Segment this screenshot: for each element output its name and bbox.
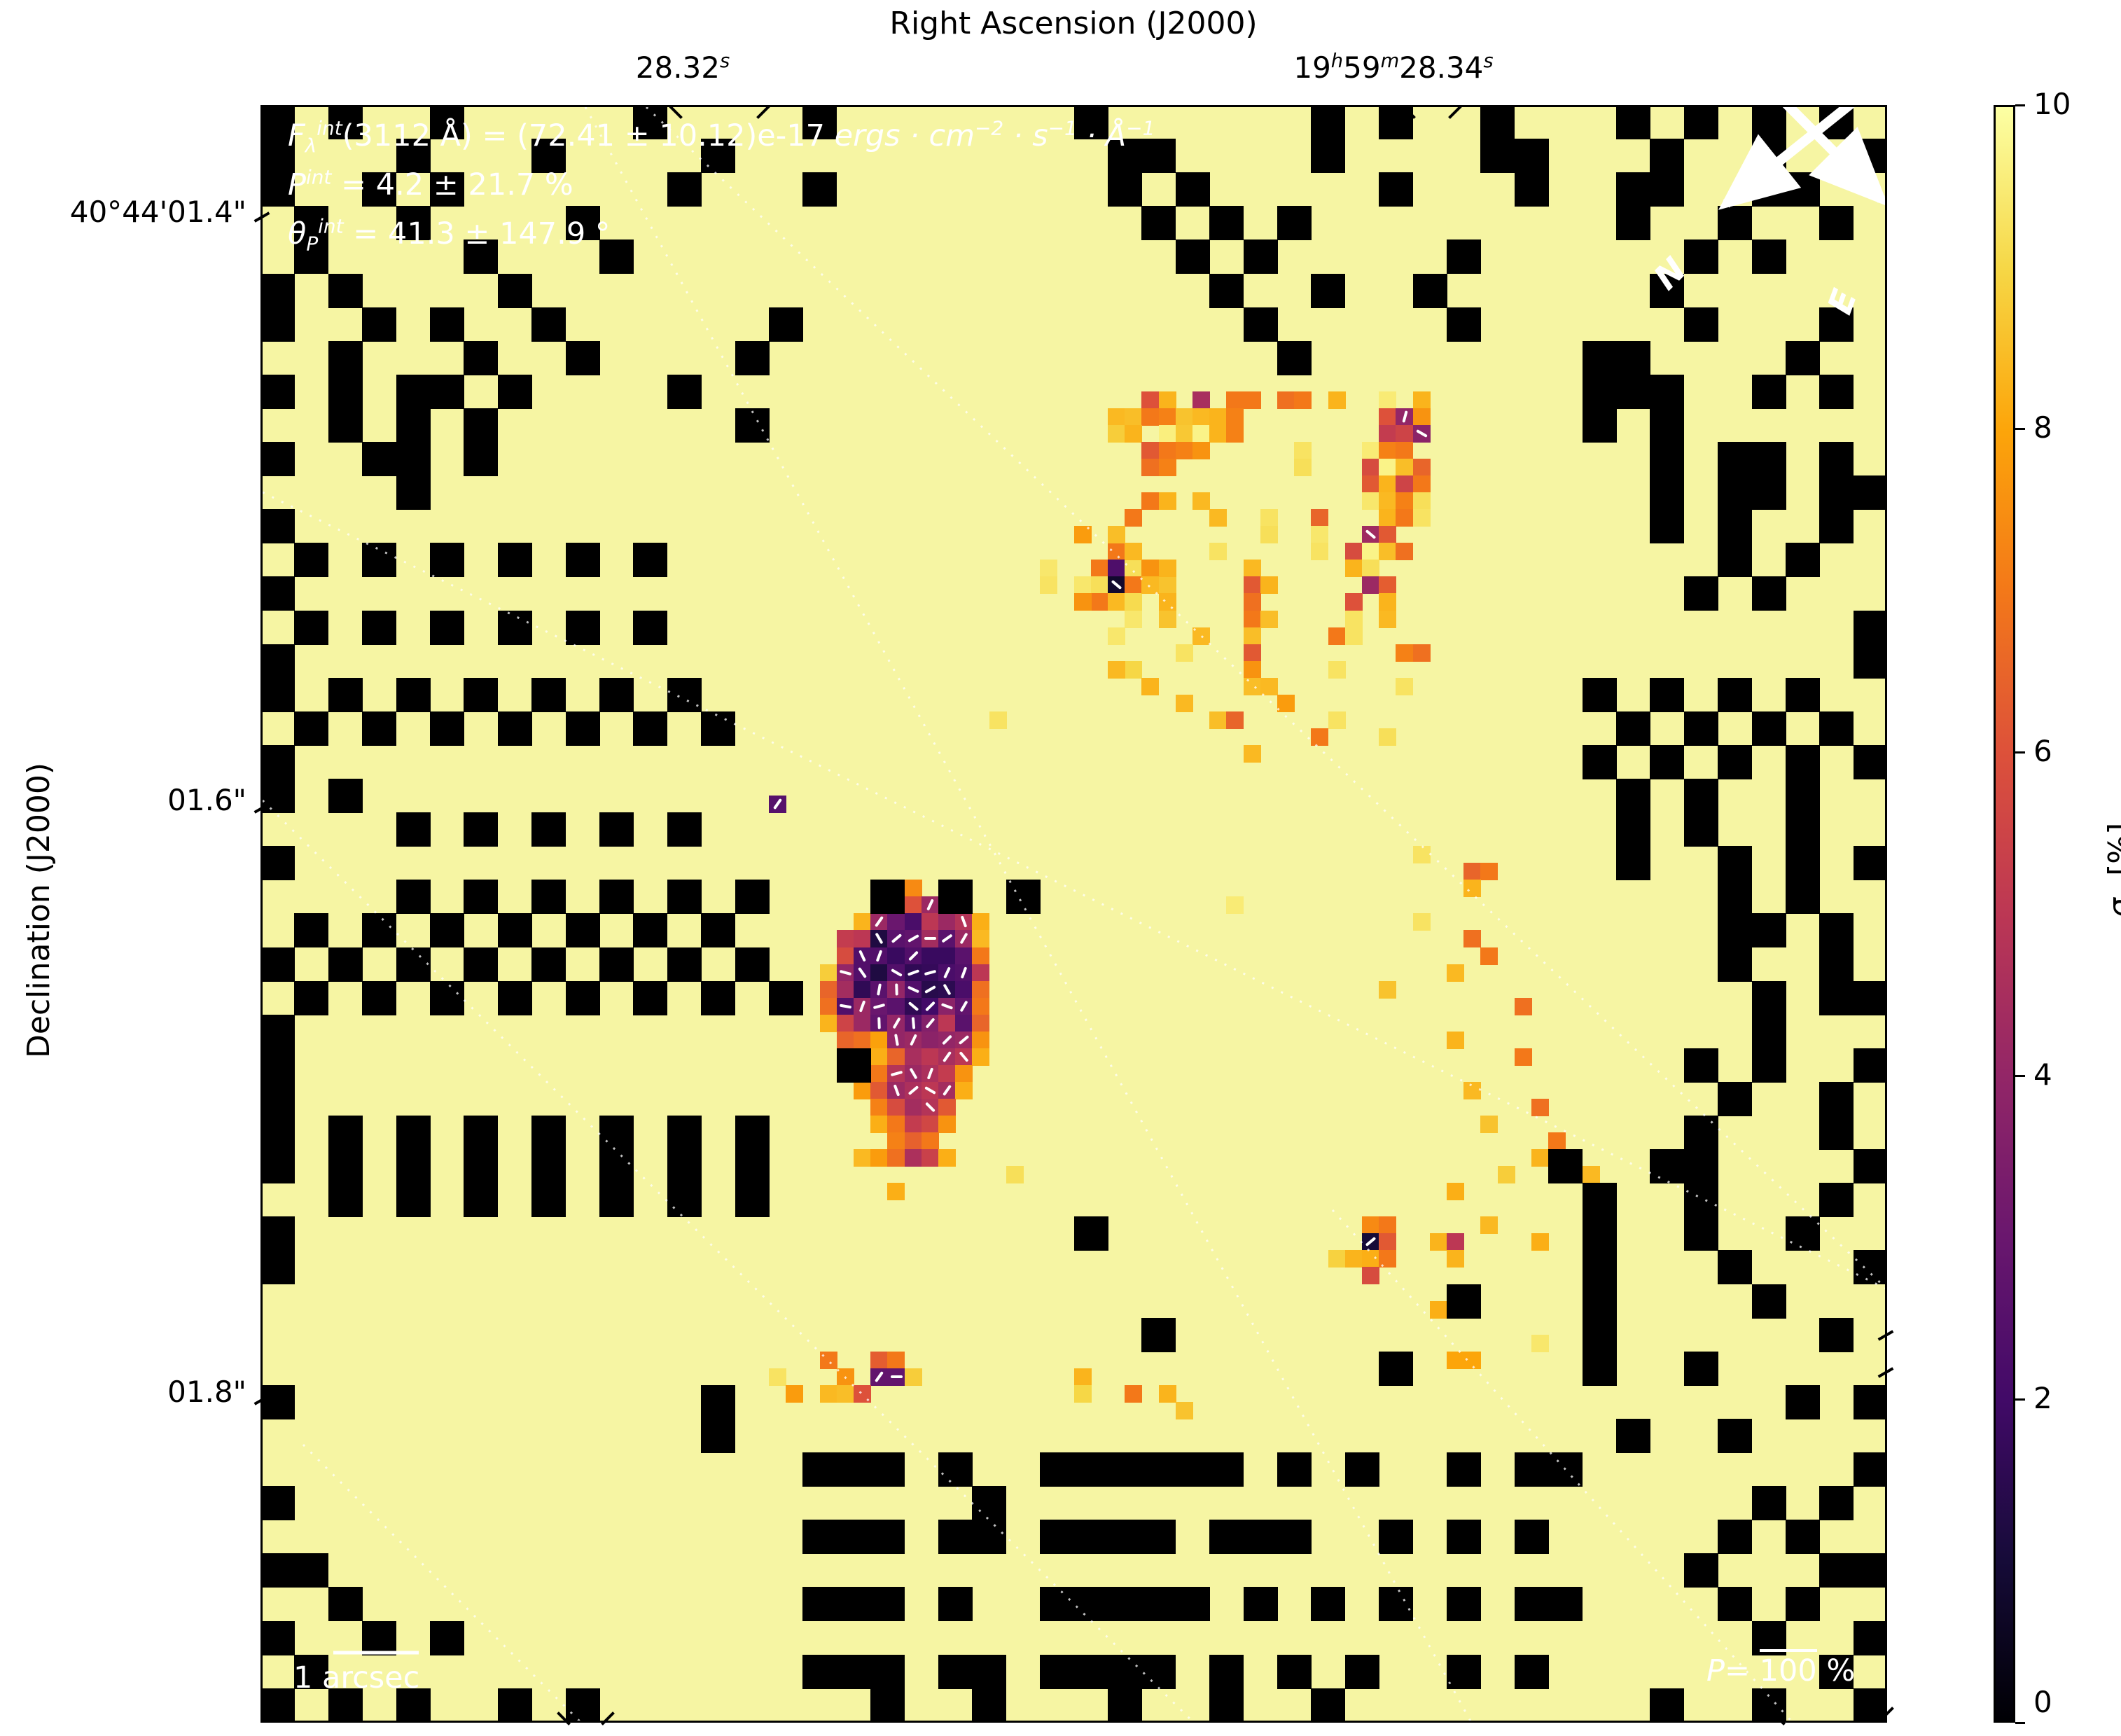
y-axis-title: Declination (J2000)	[21, 763, 57, 1058]
polarization-scale-label: P= 100 %	[1706, 1653, 1855, 1688]
text-token: P	[288, 167, 306, 202]
text-token: m	[1381, 50, 1400, 72]
colorbar-tick-label: 6	[2033, 734, 2052, 768]
text-token: P	[1706, 1653, 1725, 1688]
text-token: int	[306, 166, 331, 189]
text-token: %	[1817, 1653, 1856, 1688]
slit-dotted-line	[646, 107, 1887, 1289]
text-token: ergs · cm	[835, 118, 975, 153]
colorbar-unit: [%]	[2102, 823, 2121, 886]
slit-dotted-line	[585, 107, 1473, 1723]
colorbar-tick-label: 4	[2033, 1057, 2052, 1092]
text-token: int	[318, 215, 343, 238]
text-token: = 4.2 ± 21.7 %	[331, 167, 573, 202]
text-token: = 41.3 ± 147.9 °	[344, 216, 611, 251]
text-token: Å	[1106, 118, 1126, 153]
text-token: 59	[1343, 50, 1380, 85]
heatmap-plot-area: N E Fλint(3112 Å) = (72.41 ± 10.12)e-17 …	[260, 105, 1887, 1723]
compass-east-arrow	[1749, 107, 1882, 200]
colorbar-tick-mark	[2015, 428, 2025, 430]
text-token: 28.32	[636, 50, 720, 85]
text-token: s	[1032, 118, 1048, 153]
slit-dotted-line	[263, 800, 1196, 1723]
scalebar-label: 1 arcsec	[293, 1660, 419, 1695]
text-token: int	[317, 117, 342, 140]
colorbar-tick-label: 2	[2033, 1381, 2052, 1415]
text-token: −1	[1126, 117, 1155, 140]
y-tick-label-3: 01.8"	[167, 1375, 246, 1409]
colorbar-tick-mark	[2015, 104, 2025, 106]
plot-overlay-svg	[263, 107, 1887, 1723]
text-token: ·	[1003, 118, 1032, 153]
angle-annotation: θPint = 41.3 ± 147.9 °	[288, 216, 610, 251]
sigma-subscript: P	[2118, 886, 2121, 898]
colorbar-tick-mark	[2015, 1075, 2025, 1077]
slit-dotted-line	[263, 492, 1887, 1289]
top-tick-label-1: 28.32s	[636, 50, 730, 85]
colorbar-tick-mark	[2015, 1398, 2025, 1401]
text-token: s	[1483, 50, 1493, 72]
flux-annotation: Fλint(3112 Å) = (72.41 ± 10.12)e-17 ergs…	[288, 118, 1155, 153]
text-token: 28.34	[1399, 50, 1483, 85]
y-tick-label-2: 01.6"	[167, 783, 246, 817]
text-token: θ	[288, 216, 306, 251]
text-token: λ	[305, 134, 317, 158]
text-token: h	[1331, 50, 1343, 72]
text-token: −1	[1048, 117, 1077, 140]
text-token: ·	[1077, 118, 1106, 153]
colorbar	[1994, 105, 2015, 1723]
text-token: (3112 Å) = (72.41 ± 10.12)e-17	[342, 118, 835, 153]
text-token: F	[288, 118, 305, 153]
polarization-annotation: Pint = 4.2 ± 21.7 %	[288, 167, 573, 202]
colorbar-tick-label: 10	[2033, 87, 2071, 121]
colorbar-axis-label: σP [%]	[2102, 823, 2121, 917]
text-token: P	[306, 232, 318, 256]
text-token: 100	[1760, 1649, 1817, 1688]
colorbar-tick-mark	[2015, 1722, 2025, 1724]
colorbar-tick-mark	[2015, 751, 2025, 754]
text-token: s	[720, 50, 730, 72]
text-token: −2	[975, 117, 1003, 140]
colorbar-tick-label: 8	[2033, 410, 2052, 445]
figure-canvas: Right Ascension (J2000) 28.32s 19h59m28.…	[0, 0, 2121, 1736]
top-axis-title: Right Ascension (J2000)	[889, 6, 1257, 41]
slit-dotted-line	[1333, 1210, 1795, 1723]
slit-outline-dotted-lines	[263, 107, 1887, 1723]
colorbar-tick-label: 0	[2033, 1685, 2052, 1719]
text-token: 19	[1293, 50, 1330, 85]
y-tick-label-1: 40°44'01.4"	[70, 195, 246, 229]
top-tick-label-2: 19h59m28.34s	[1293, 50, 1493, 85]
compass	[1726, 107, 1887, 204]
text-token: =	[1725, 1653, 1760, 1688]
sigma-symbol: σ	[2102, 898, 2121, 917]
